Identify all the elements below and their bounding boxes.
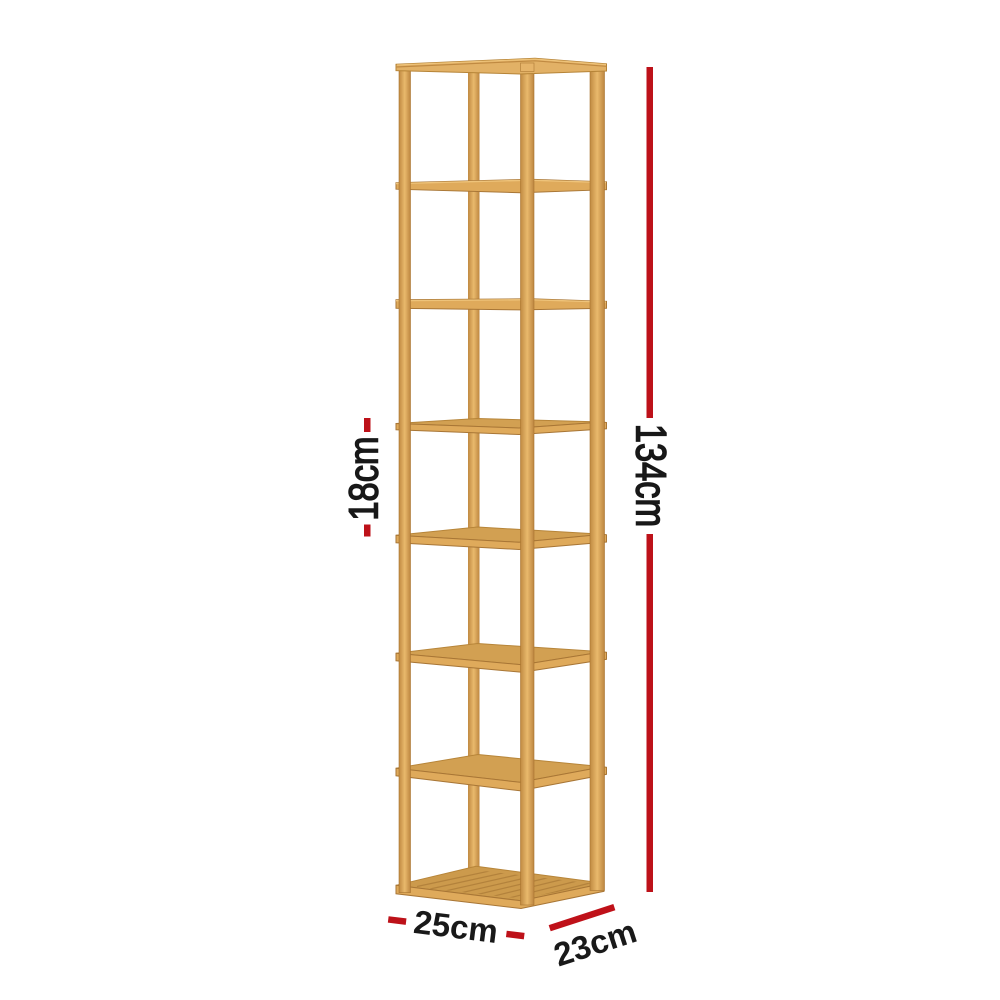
svg-text:25cm: 25cm: [412, 903, 500, 950]
svg-text:134cm: 134cm: [627, 424, 674, 527]
svg-text:18cm: 18cm: [342, 436, 387, 520]
